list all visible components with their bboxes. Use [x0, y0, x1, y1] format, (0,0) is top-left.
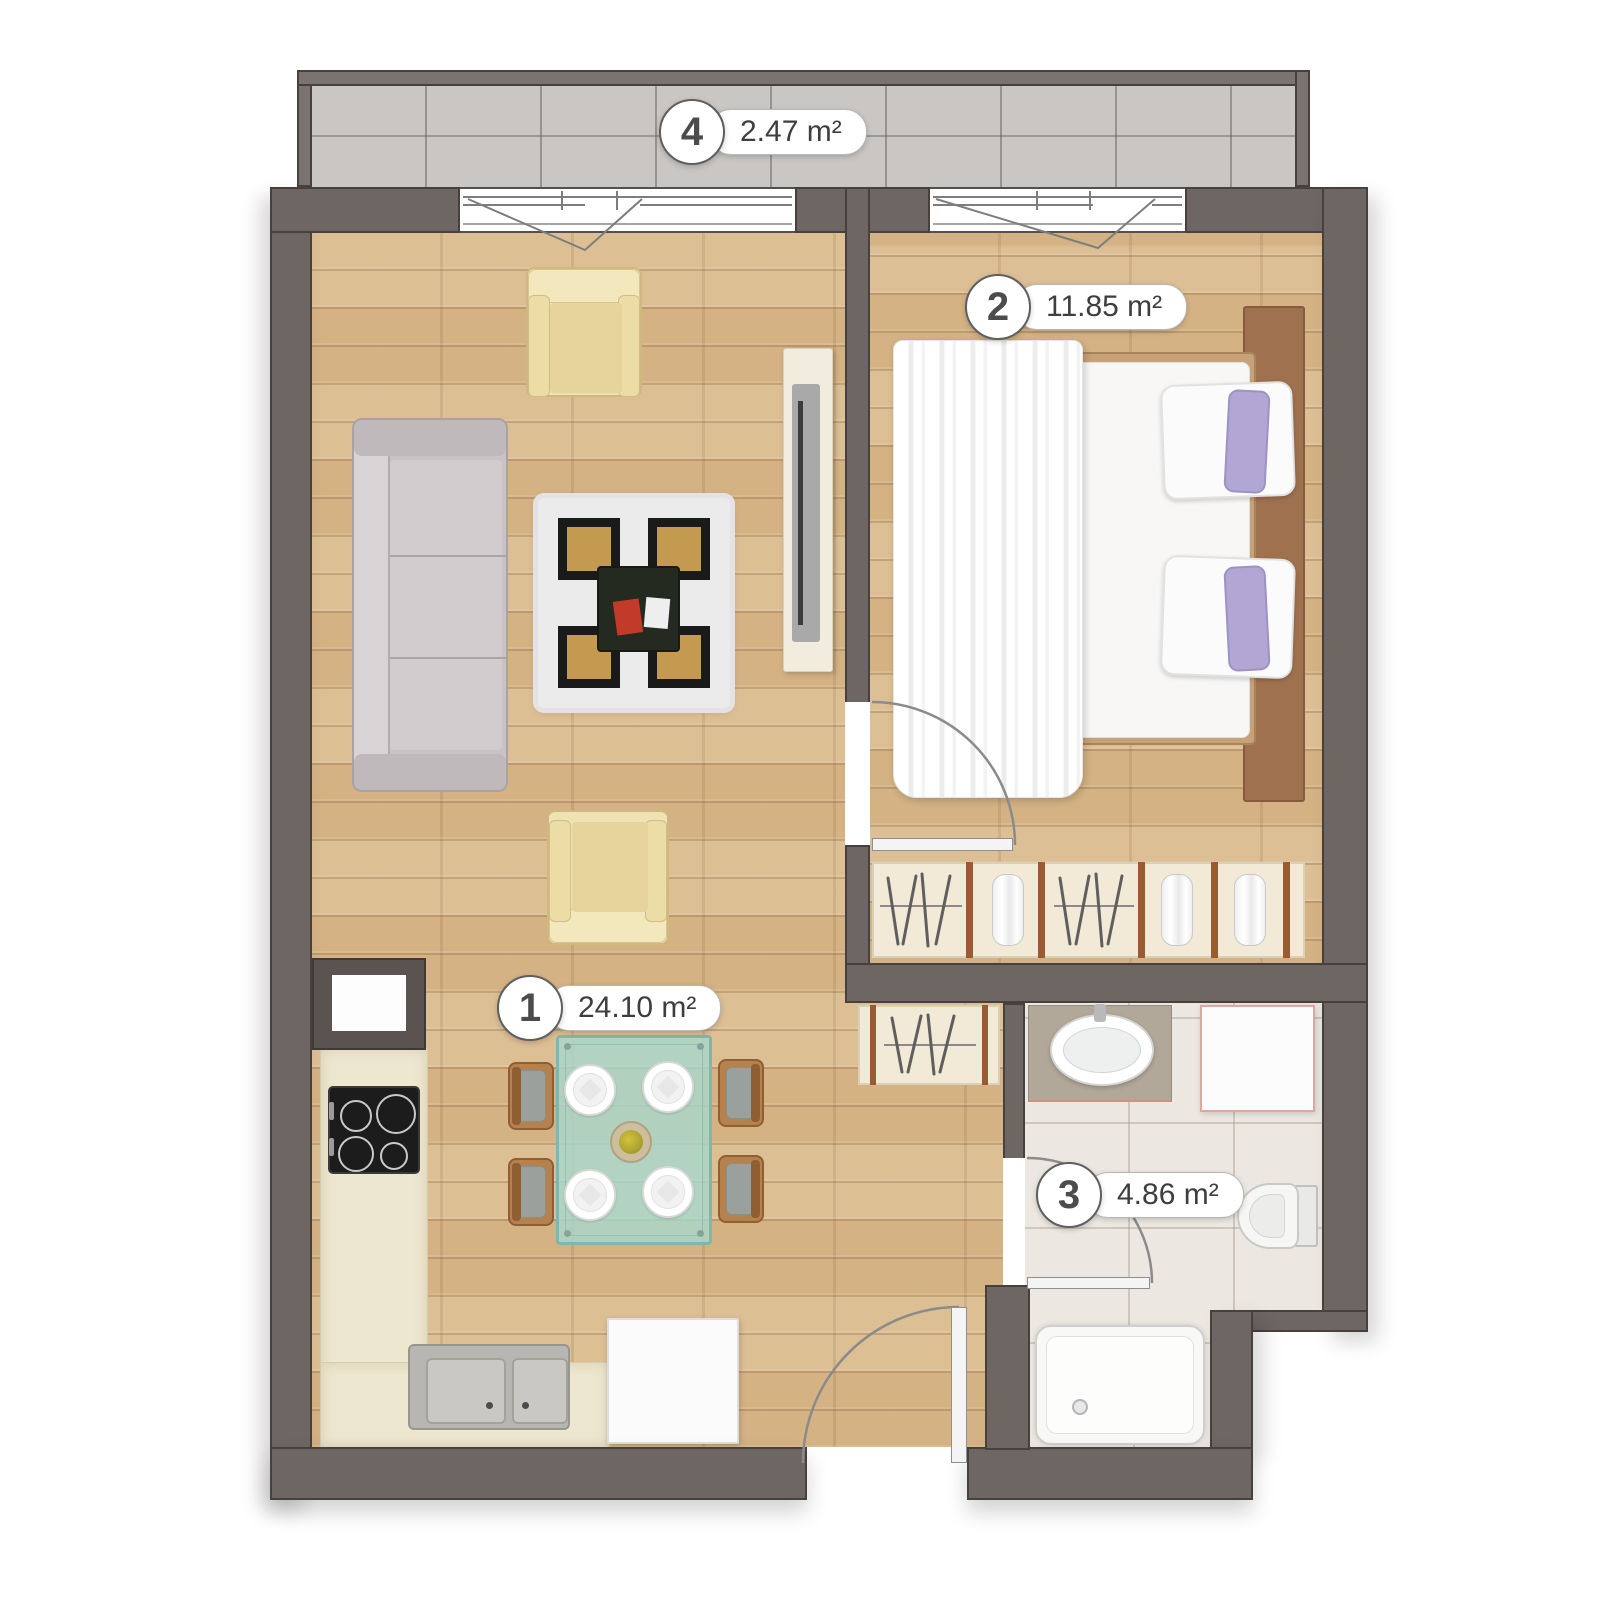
wardrobe-hallway	[858, 1005, 1000, 1085]
wardrobe-divider	[1138, 862, 1145, 958]
room-label-bedroom: 2 11.85 m²	[965, 276, 1187, 338]
armchair-armrest-right	[645, 820, 667, 922]
armchair-bottom	[547, 810, 669, 945]
room-area-bedroom: 11.85 m²	[1015, 284, 1187, 330]
room-number-bedroom: 2	[965, 274, 1031, 340]
toilet-bowl-inner	[1249, 1194, 1285, 1238]
dining-chair	[508, 1062, 554, 1130]
room-number-living: 1	[497, 975, 563, 1041]
wardrobe-divider	[1038, 862, 1045, 958]
balcony-railing-right	[1295, 70, 1310, 187]
bathroom-door-leaf	[1027, 1277, 1150, 1289]
fridge	[607, 1318, 739, 1444]
salad-bowl-contents	[619, 1130, 643, 1154]
shower-drain	[1072, 1399, 1088, 1415]
cooktop-knob	[329, 1102, 334, 1120]
armchair-top	[526, 267, 642, 397]
wardrobe-divider	[982, 1005, 988, 1085]
dining-chair	[718, 1059, 764, 1127]
wall-exterior-left	[270, 187, 312, 1500]
sink-bowl-left	[426, 1358, 506, 1424]
wall-bathroom-right-lower	[1210, 1310, 1253, 1450]
tv-console	[783, 348, 833, 672]
room-label-living: 1 24.10 m²	[497, 977, 721, 1039]
chair-backrest	[512, 1067, 521, 1125]
cooktop	[328, 1086, 420, 1174]
room-number-balcony: 4	[659, 99, 725, 165]
sofa-armrest-top	[354, 420, 506, 456]
entrance-door-leaf	[951, 1307, 967, 1463]
dining-chair	[718, 1155, 764, 1223]
dining-chair	[508, 1158, 554, 1226]
pillow-lavender	[1223, 389, 1270, 494]
wardrobe-divider	[1283, 862, 1290, 958]
wall-bathroom-left-lower	[985, 1285, 1030, 1450]
table-corner-fitting	[564, 1230, 571, 1237]
room-area-living: 24.10 m²	[547, 985, 721, 1031]
armchair-armrest-left	[528, 295, 550, 397]
burner	[338, 1136, 374, 1172]
coffee-table	[597, 566, 680, 652]
table-corner-fitting	[697, 1230, 704, 1237]
wardrobe-divider	[870, 1005, 876, 1085]
room-number-bathroom: 3	[1036, 1162, 1102, 1228]
sofa-cushion-divider	[390, 555, 506, 557]
bed-duvet	[893, 340, 1083, 798]
folded-clothes	[1234, 874, 1266, 946]
shower-tray-inner	[1046, 1336, 1194, 1434]
shower-tray	[1035, 1325, 1205, 1445]
burner	[376, 1094, 416, 1134]
sink-basin-inner	[1063, 1027, 1141, 1073]
washing-machine	[1200, 1005, 1315, 1112]
wardrobe-divider	[1211, 862, 1218, 958]
wall-exterior-bottom-left	[270, 1447, 807, 1500]
sofa-cushion-divider	[390, 657, 506, 659]
salad-bowl	[610, 1121, 652, 1163]
magazine-white	[644, 597, 671, 629]
pillow-lavender	[1223, 565, 1270, 672]
cooktop-knob	[329, 1138, 334, 1156]
wall-exterior-right	[1322, 187, 1368, 1332]
wall-bedroom-bottom	[845, 963, 1368, 1003]
balcony-railing-left	[297, 70, 312, 187]
faucet	[1094, 1004, 1106, 1022]
plate	[564, 1064, 616, 1116]
wall-bathroom-left-upper	[1003, 1003, 1025, 1160]
room-label-balcony: 4 2.47 m²	[659, 101, 867, 163]
burner	[340, 1100, 372, 1132]
sofa	[352, 418, 508, 792]
sink-basin	[1050, 1014, 1154, 1086]
bedroom-door-leaf	[872, 838, 1013, 851]
chair-backrest	[751, 1160, 760, 1218]
folded-clothes	[1161, 874, 1193, 946]
burner	[380, 1142, 408, 1170]
door-opening-bathroom	[1003, 1158, 1025, 1285]
room-area-bathroom: 4.86 m²	[1086, 1172, 1244, 1218]
wall-exterior-bottom-right	[967, 1447, 1253, 1500]
tv-screen	[798, 401, 803, 625]
sink-drain	[486, 1402, 493, 1409]
kitchen-wall-niche	[312, 958, 426, 1050]
floor-plan: 1 24.10 m² 2 11.85 m² 3 4.86 m² 4 2.47 m…	[0, 0, 1600, 1600]
kitchen-sink	[408, 1344, 570, 1430]
tv	[792, 384, 820, 642]
plate	[564, 1169, 616, 1221]
armchair-seat	[572, 822, 648, 912]
chair-backrest	[512, 1163, 521, 1221]
armchair-armrest-left	[549, 820, 571, 922]
armchair-seat	[550, 303, 622, 393]
sofa-armrest-bottom	[354, 754, 506, 790]
sink-bowl-right	[512, 1358, 568, 1424]
table-corner-fitting	[564, 1043, 571, 1050]
folded-clothes	[992, 874, 1024, 946]
wall-living-bedroom-upper	[845, 187, 870, 705]
magazine-red	[613, 598, 643, 635]
chair-backrest	[751, 1064, 760, 1122]
wall-living-bedroom-lower	[845, 845, 870, 965]
balcony-railing-top	[297, 70, 1310, 86]
window-bedroom-balcony	[930, 187, 1185, 233]
toilet	[1237, 1183, 1299, 1249]
sink-drain	[522, 1402, 529, 1409]
sofa-backrest	[354, 420, 390, 790]
room-area-balcony: 2.47 m²	[709, 109, 867, 155]
plate	[642, 1166, 694, 1218]
wardrobe-divider	[966, 862, 973, 958]
room-label-bathroom: 3 4.86 m²	[1036, 1164, 1244, 1226]
sofa-seat	[390, 460, 502, 750]
window-living-balcony	[460, 187, 795, 233]
wall-exterior-top-left	[270, 187, 460, 233]
plate	[642, 1061, 694, 1113]
door-opening-bedroom	[845, 702, 870, 845]
kitchen-niche-glass	[332, 975, 406, 1031]
table-corner-fitting	[697, 1043, 704, 1050]
